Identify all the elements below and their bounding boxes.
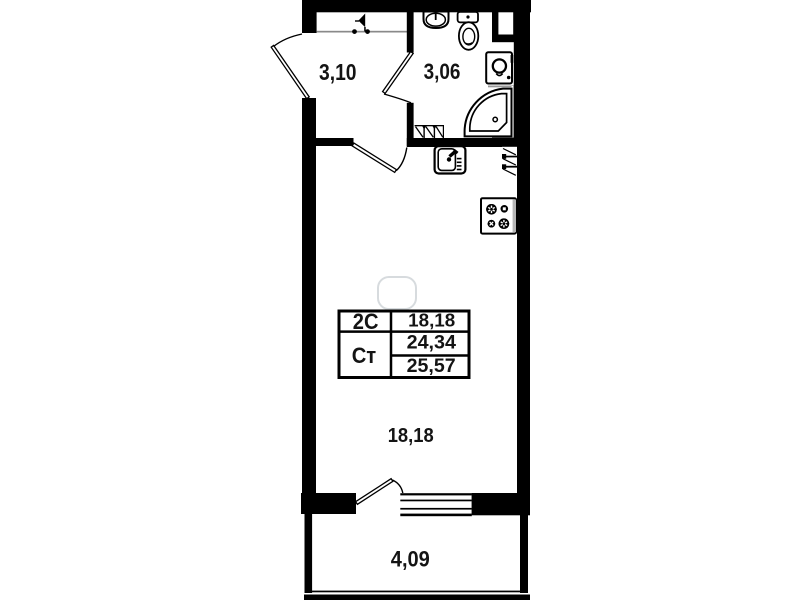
svg-text:4,09: 4,09: [391, 547, 430, 572]
svg-text:2C: 2C: [353, 309, 379, 334]
svg-text:Ст: Ст: [352, 343, 377, 368]
svg-text:3,10: 3,10: [319, 59, 357, 85]
svg-text:24,34: 24,34: [407, 332, 457, 354]
svg-text:25,57: 25,57: [407, 356, 456, 377]
svg-text:3,06: 3,06: [424, 59, 461, 84]
svg-text:18,18: 18,18: [388, 424, 434, 447]
svg-text:18,18: 18,18: [408, 310, 455, 331]
